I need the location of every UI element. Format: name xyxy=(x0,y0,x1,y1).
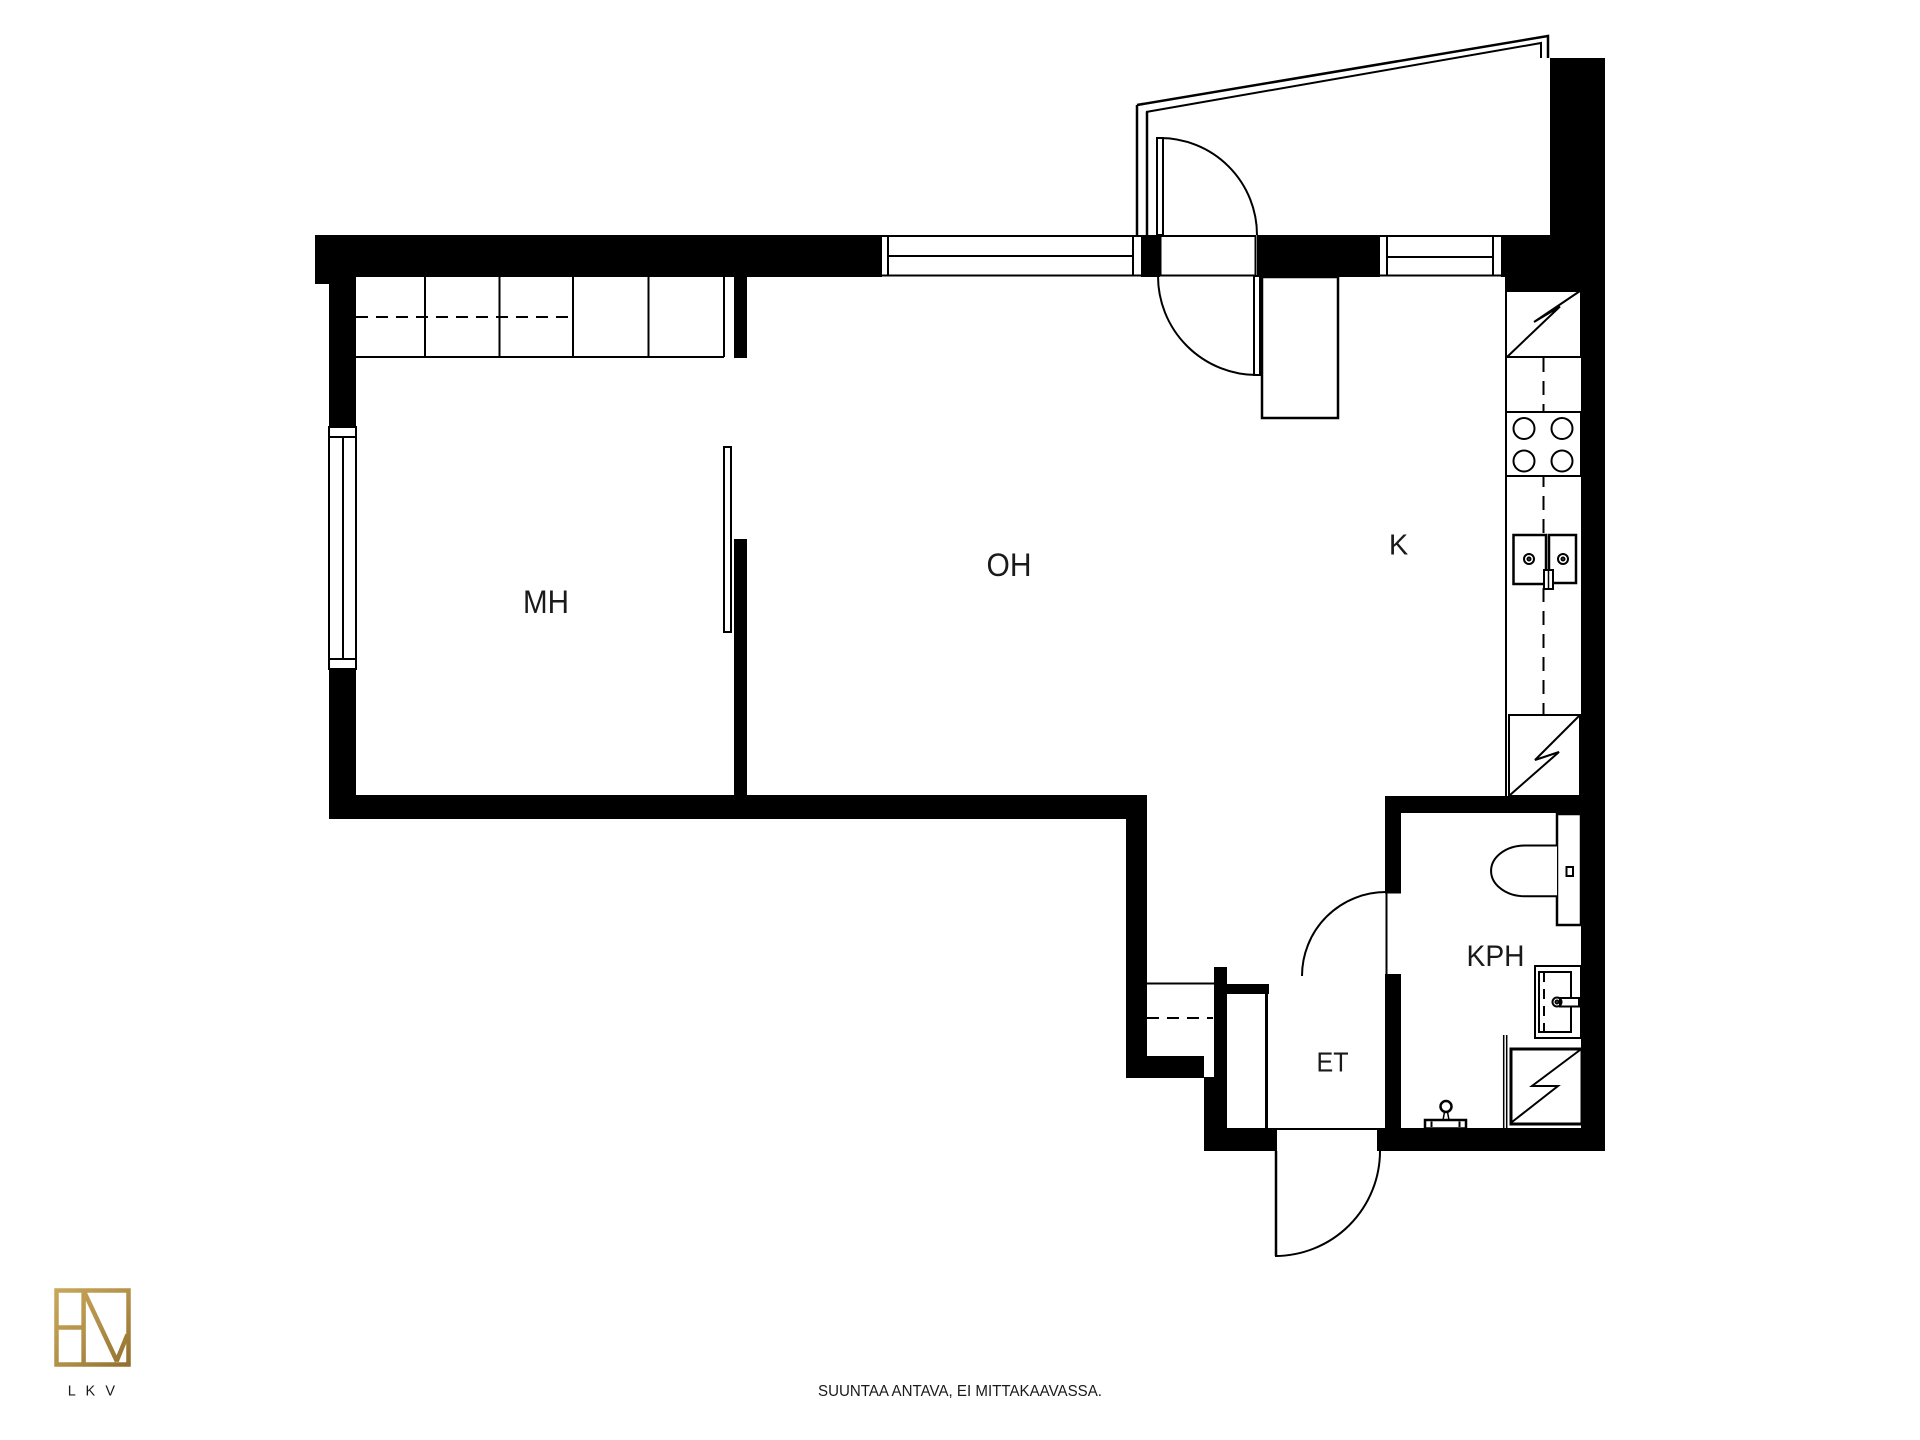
svg-text:OH: OH xyxy=(987,547,1032,583)
svg-text:L K V: L K V xyxy=(68,1384,118,1400)
svg-text:ET: ET xyxy=(1317,1047,1349,1078)
svg-text:KPH: KPH xyxy=(1467,940,1525,973)
svg-text:SUUNTAA ANTAVA, EI MITTAKAAVAS: SUUNTAA ANTAVA, EI MITTAKAAVASSA. xyxy=(818,1383,1102,1400)
svg-text:MH: MH xyxy=(523,584,569,620)
svg-text:K: K xyxy=(1389,530,1409,562)
